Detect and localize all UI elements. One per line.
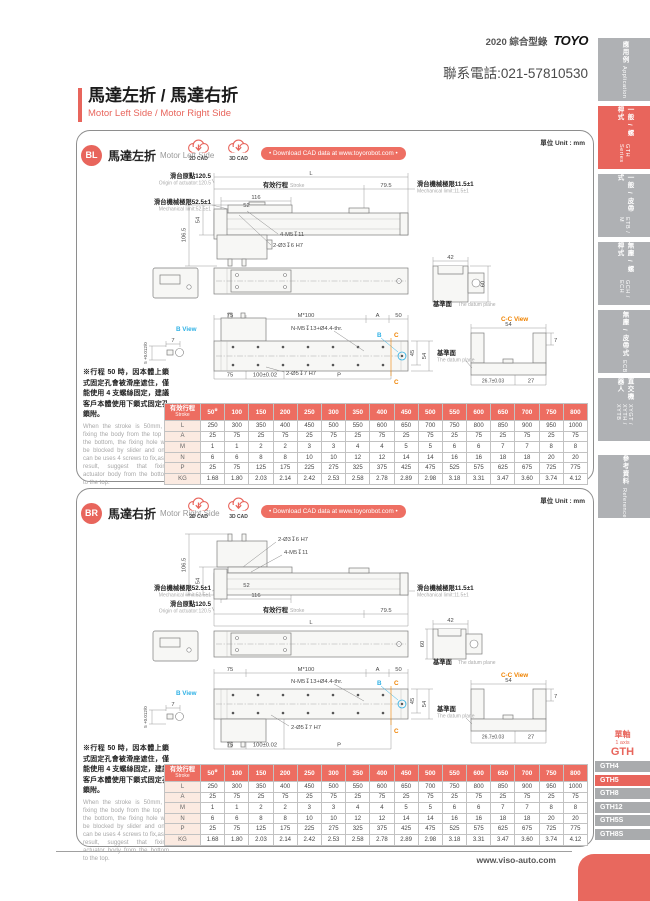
br-side-view-drawing: 2-Ø3↧6 H7 4-M5↧11 106.5 54 52 滑台機械極限52.5… [81, 527, 591, 665]
b-marker: B [377, 332, 382, 339]
panel-motor-right: BR 馬達右折 Motor Right Side 2D CAD [76, 488, 594, 847]
dim-7b: 7 [554, 694, 557, 700]
tab-label-zh: 無塵 / 螺桿式 [614, 242, 634, 277]
stroke-col-header: 150 [249, 765, 273, 782]
cad-links: 2D CAD 3D CAD [185, 497, 252, 520]
cloud-download-icon [225, 497, 252, 513]
panel-motor-left: BL 馬達左折 Motor Left Side 2D CAD [76, 130, 594, 482]
spec-cell: 3.60 [515, 834, 539, 845]
stroke-col-header: 400 [370, 765, 394, 782]
dim-A: A [376, 313, 380, 319]
spec-cell: 18 [515, 813, 539, 824]
spec-cell: 3.47 [491, 834, 515, 845]
spec-cell: 4 [370, 803, 394, 814]
tab-reference[interactable]: 參考資料 Reference [598, 455, 650, 518]
spec-cell: 600 [370, 782, 394, 793]
bl-side-view-drawing: 滑台原點120.5 Origin of actuator:120.5 L 有效行… [81, 169, 591, 311]
stroke-col-header: 700 [515, 765, 539, 782]
dim-116: 116 [251, 195, 260, 201]
tab-label-en: ECB [621, 360, 627, 373]
spec-row-P: P257512517522527532537542547552557562567… [165, 824, 588, 835]
bolt-note: 2-Ø5↧7 H7 [291, 724, 321, 731]
bl-badge: BL [81, 145, 102, 166]
spec-cell: 250 [201, 421, 225, 432]
spec-cell: 75 [467, 792, 491, 803]
spec-cell: 20 [539, 813, 563, 824]
spec-cell: 8 [273, 452, 297, 463]
cad-2d-link[interactable]: 2D CAD [185, 139, 212, 162]
mech-limit-left-en: Mechanical limit:52.5±1 [159, 593, 211, 599]
series-item-gth8[interactable]: GTH8 [595, 788, 650, 799]
datum-end-view [433, 629, 482, 659]
spec-cell: 1 [225, 803, 249, 814]
spec-cell: 16 [467, 813, 491, 824]
rail-body [214, 213, 408, 235]
dim-L: L [309, 171, 313, 177]
spec-cell: 20 [563, 452, 587, 463]
dim-45: 45 [410, 350, 416, 356]
row-label: A [165, 792, 201, 803]
row-label: P [165, 463, 201, 474]
spec-cell: 10 [321, 452, 345, 463]
download-cad-button[interactable]: • Download CAD data at www.toyorobot.com… [261, 147, 406, 160]
tab-label-zh: 一般 / 螺桿式 [614, 106, 634, 141]
dim-116: 116 [251, 593, 260, 599]
bolt-note: 2-Ø5↧7 H7 [286, 370, 316, 377]
stroke-col-header: 550 [442, 765, 466, 782]
spec-cell: 625 [491, 463, 515, 474]
cad-3d-link[interactable]: 3D CAD [225, 497, 252, 520]
dim-27: 27 [528, 379, 534, 385]
series-item-gth5s[interactable]: GTH5S [595, 815, 650, 826]
stroke-col-header: 150 [249, 404, 273, 421]
spec-cell: 75 [273, 792, 297, 803]
datum-label-zh: 基準面 [432, 299, 453, 308]
spec-cell: 75 [515, 431, 539, 442]
series-item-gth4[interactable]: GTH4 [595, 761, 650, 772]
tab-label-en: GCH / ECH [618, 280, 630, 305]
spec-cell: 12 [370, 813, 394, 824]
c-marker-top: C [394, 680, 399, 687]
stroke-header-cell: 有效行程Stroke [165, 404, 201, 421]
spec-cell: 500 [321, 782, 345, 793]
spec-cell: 12 [370, 452, 394, 463]
spec-cell: 475 [418, 463, 442, 474]
spec-cell: 525 [442, 824, 466, 835]
dim-79-5: 79.5 [380, 608, 391, 614]
cad-3d-link[interactable]: 3D CAD [225, 139, 252, 162]
tab-application[interactable]: 應用例 Application [598, 38, 650, 101]
datum-label-en: The datum plane [437, 358, 475, 364]
spec-cell: 5 [418, 442, 442, 453]
spec-cell: 5 [394, 803, 418, 814]
stroke-note: ※行程 50 時，因本體上鎖式固定孔會被滑座遮住，僅能使用 4 支螺絲固定，建議… [83, 368, 169, 487]
spec-cell: 650 [394, 782, 418, 793]
spec-cell: 14 [418, 813, 442, 824]
row-label: N [165, 452, 201, 463]
tab-label-zh: 參考資料 [619, 455, 629, 485]
tab-gth-series[interactable]: 一般 / 螺桿式 GTH Series [598, 106, 650, 169]
spec-cell: 3 [297, 803, 321, 814]
spec-cell: 2.78 [370, 834, 394, 845]
spec-cell: 6 [467, 442, 491, 453]
spec-cell: 16 [442, 452, 466, 463]
spec-cell: 2 [273, 442, 297, 453]
stroke-col-header: 200 [273, 765, 297, 782]
b-view-label: B View [176, 690, 197, 697]
spec-cell: 18 [491, 813, 515, 824]
b-marker: B [377, 680, 382, 687]
spec-cell: 675 [515, 463, 539, 474]
spec-cell: 750 [442, 421, 466, 432]
spec-cell: 350 [249, 421, 273, 432]
stroke-label-zh: 有效行程 [263, 605, 289, 614]
spec-cell: 4 [346, 442, 370, 453]
slider-block [228, 205, 292, 213]
origin-label-zh: 滑台原點120.5 [170, 599, 211, 608]
page-title: 馬達左折 / 馬達右折 [88, 86, 238, 106]
spec-cell: 3 [297, 442, 321, 453]
footer-divider [56, 851, 572, 852]
series-group-code: GTH [595, 746, 650, 758]
spec-cell: 125 [249, 824, 273, 835]
spec-cell: 10 [321, 813, 345, 824]
dim-106-5: 106.5 [182, 558, 188, 573]
cad-2d-link[interactable]: 2D CAD [185, 497, 212, 520]
download-cad-button[interactable]: • Download CAD data at www.toyorobot.com… [261, 505, 406, 518]
series-item-gth8s[interactable]: GTH8S [595, 829, 650, 840]
mech-limit-left-en: Mechanical limit:52.5±1 [159, 207, 211, 213]
spec-cell: 3 [321, 803, 345, 814]
category-sidebar: 應用例 Application 一般 / 螺桿式 GTH Series 一般 /… [598, 38, 650, 518]
spec-cell: 6 [225, 813, 249, 824]
spec-cell: 3 [321, 442, 345, 453]
spec-row-L: L250300350400450500550600650700750800850… [165, 421, 588, 432]
tab-label-zh: 應用例 [619, 41, 629, 64]
spec-cell: 2.53 [321, 834, 345, 845]
stroke-col-header: 350 [346, 404, 370, 421]
motor-end-view [153, 268, 198, 298]
spec-cell: 275 [321, 824, 345, 835]
tab-xy-robots[interactable]: 直交機器人 XYGT / XYTH / XYTB [598, 378, 650, 441]
datum-label-en: The datum plane [458, 302, 496, 308]
spec-cell: 2.14 [273, 473, 297, 484]
spec-cell: 2.14 [273, 834, 297, 845]
spec-cell: 7 [515, 442, 539, 453]
spec-cell: 8 [539, 442, 563, 453]
spec-cell: 25 [491, 431, 515, 442]
dim-60: 60 [481, 281, 487, 287]
series-item-gth5[interactable]: GTH5 [595, 775, 650, 786]
spec-row-KG: KG1.681.802.032.142.422.532.582.782.892.… [165, 834, 588, 845]
spec-cell: 25 [491, 792, 515, 803]
spec-cell: 7 [491, 442, 515, 453]
dim-54b: 54 [422, 352, 428, 359]
spec-cell: 12 [346, 452, 370, 463]
spec-cell: 900 [515, 782, 539, 793]
spec-row-M: M1122334455667788 [165, 803, 588, 814]
page-subtitle: Motor Left Side / Motor Right Side [88, 108, 238, 119]
spec-cell: 75 [370, 792, 394, 803]
spec-cell: 14 [394, 452, 418, 463]
dim-75: 75 [227, 667, 233, 673]
spec-cell: 425 [394, 463, 418, 474]
row-label: L [165, 421, 201, 432]
spec-cell: 2.78 [370, 473, 394, 484]
dim-L: L [309, 620, 313, 626]
dim-42: 42 [447, 255, 453, 261]
origin-label-en: Origin of actuator:120.5 [159, 181, 211, 187]
spec-cell: 12 [346, 813, 370, 824]
spec-cell: 16 [442, 813, 466, 824]
spec-cell: 25 [297, 431, 321, 442]
cad-links: 2D CAD 3D CAD [185, 139, 252, 162]
spec-cell: 25 [297, 792, 321, 803]
spec-cell: 1.80 [225, 473, 249, 484]
stroke-note: ※行程 50 時，因本體上鎖式固定孔會被滑座遮住，僅能使用 4 支螺絲固定，建議… [83, 744, 169, 863]
spec-cell: 350 [249, 782, 273, 793]
dim-100tol: 100±0.02 [253, 743, 277, 749]
spec-cell: 25 [201, 792, 225, 803]
dim-75: 75 [227, 313, 233, 319]
dim-M100: M*100 [298, 313, 315, 319]
spec-cell: 3.74 [539, 473, 563, 484]
spec-cell: 800 [467, 421, 491, 432]
spec-cell: 75 [225, 824, 249, 835]
spec-cell: 225 [297, 824, 321, 835]
spec-cell: 14 [394, 813, 418, 824]
stroke-label-zh: 有效行程 [263, 180, 289, 189]
stroke-header-cell: 有效行程Stroke [165, 765, 201, 782]
spec-cell: 525 [442, 463, 466, 474]
spec-cell: 850 [491, 421, 515, 432]
dim-54b: 54 [422, 700, 428, 707]
dim-7: 7 [171, 702, 174, 708]
spec-cell: 25 [394, 792, 418, 803]
spec-cell: 375 [370, 463, 394, 474]
spec-cell: 75 [321, 431, 345, 442]
spec-cell: 4.12 [563, 473, 587, 484]
dim-7b: 7 [554, 338, 557, 344]
series-item-gth12[interactable]: GTH12 [595, 802, 650, 813]
cloud-download-icon [225, 139, 252, 155]
mech-limit-left-zh: 滑台機械極限52.5±1 [154, 583, 211, 592]
datum-end-view [433, 266, 484, 302]
spec-cell: 8 [539, 803, 563, 814]
spec-cell: 900 [515, 421, 539, 432]
spec-cell: 6 [442, 442, 466, 453]
spec-row-N: N6688101012121414161618182020 [165, 452, 588, 463]
spec-row-L: L250300350400450500550600650700750800850… [165, 782, 588, 793]
spec-row-P: P257512517522527532537542547552557562567… [165, 463, 588, 474]
spec-cell: 325 [346, 824, 370, 835]
motor-body [221, 318, 266, 341]
row-label: N [165, 813, 201, 824]
dim-75b: 75 [227, 373, 233, 379]
unit-label: 單位 Unit : mm [540, 137, 585, 147]
tab-label-zh: 一般 / 皮帶式 [614, 174, 634, 214]
spec-cell: 575 [467, 463, 491, 474]
spec-cell: 575 [467, 824, 491, 835]
stroke-col-header: 500 [418, 404, 442, 421]
spec-cell: 2.53 [321, 473, 345, 484]
stroke-col-header: 600 [467, 765, 491, 782]
stroke-col-header: 450 [394, 404, 418, 421]
spec-cell: 800 [467, 782, 491, 793]
stroke-col-header: 400 [370, 404, 394, 421]
tab-gch-ech[interactable]: 無塵 / 螺桿式 GCH / ECH [598, 242, 650, 305]
spec-cell: 20 [539, 452, 563, 463]
dim-100tol: 100±0.02 [253, 373, 277, 379]
spec-cell: 75 [225, 463, 249, 474]
mech-limit-right-en: Mechanical limit:11.5±1 [417, 593, 469, 599]
cc-section-view [471, 689, 546, 731]
spec-cell: 600 [370, 421, 394, 432]
spec-cell: 5 [418, 803, 442, 814]
spec-cell: 2.42 [297, 834, 321, 845]
pin-tolerance: 5 +0.012/0 [143, 706, 148, 728]
mech-limit-left-zh: 滑台機械極限52.5±1 [154, 197, 211, 206]
spec-row-M: M1122334455667788 [165, 442, 588, 453]
stroke-col-header: 800 [563, 765, 587, 782]
stroke-col-header: 200 [273, 404, 297, 421]
spec-cell: 3.31 [467, 834, 491, 845]
stroke-col-header: 750 [539, 404, 563, 421]
c-marker-bottom: C [394, 728, 399, 735]
spec-cell: 75 [418, 792, 442, 803]
slider-block [228, 567, 292, 573]
stroke-col-header: 300 [321, 765, 345, 782]
row-label: KG [165, 473, 201, 484]
spec-cell: 400 [273, 782, 297, 793]
spec-cell: 25 [201, 463, 225, 474]
spec-cell: 7 [515, 803, 539, 814]
screw-note-2: 2-Ø3↧6 H7 [278, 536, 308, 543]
dim-26-7: 26.7±0.03 [482, 735, 504, 741]
spec-cell: 4.12 [563, 834, 587, 845]
tab-label-en: Application [621, 66, 627, 98]
spec-cell: 550 [346, 421, 370, 432]
bl-spec-table: 有效行程Stroke50※100150200250300350400450500… [164, 403, 588, 485]
spec-cell: 1000 [563, 782, 587, 793]
spec-cell: 10 [297, 813, 321, 824]
stroke-col-header: 250 [297, 765, 321, 782]
cloud-download-icon [185, 497, 212, 513]
br-spec-table: 有效行程Stroke50※100150200250300350400450500… [164, 764, 588, 846]
page-title-block: 馬達左折 / 馬達右折 Motor Left Side / Motor Righ… [78, 86, 238, 119]
spec-cell: 1 [225, 442, 249, 453]
spec-cell: 675 [515, 824, 539, 835]
stroke-label-en: Stroke [290, 608, 305, 614]
spec-cell: 1.80 [225, 834, 249, 845]
dim-79-5: 79.5 [380, 183, 391, 189]
cad-2d-label: 2D CAD [185, 514, 212, 520]
series-group-zh: 單軸 [595, 729, 650, 740]
series-nav: 單軸 1 axis GTH GTH4 GTH5 GTH8 GTH12 GTH5S… [595, 729, 650, 842]
spec-cell: 4 [346, 803, 370, 814]
spec-cell: 500 [321, 421, 345, 432]
dim-7: 7 [171, 338, 174, 344]
hole-note: N-M5↧13+Ø4.4-thr. [291, 678, 343, 685]
pin-detail [167, 349, 184, 357]
cad-2d-label: 2D CAD [185, 156, 212, 162]
actuator-side-view [214, 202, 408, 266]
spec-cell: 2.98 [418, 473, 442, 484]
spec-cell: 25 [539, 431, 563, 442]
spec-cell: 10 [297, 452, 321, 463]
row-label: P [165, 824, 201, 835]
spec-cell: 300 [225, 782, 249, 793]
spec-cell: 300 [225, 421, 249, 432]
contact-phone: 聯系電話:021-57810530 [443, 62, 588, 82]
spec-cell: 400 [273, 421, 297, 432]
stroke-col-header: 300 [321, 404, 345, 421]
spec-cell: 2 [249, 803, 273, 814]
motor-end-view [153, 631, 198, 661]
dim-P: P [337, 373, 341, 379]
spec-cell: 950 [539, 421, 563, 432]
dim-54: 54 [196, 216, 202, 223]
tab-label-en: ETB / M [618, 217, 630, 237]
spec-cell: 18 [515, 452, 539, 463]
spec-cell: 3.31 [467, 473, 491, 484]
title-accent-bar [78, 88, 82, 122]
stroke-col-header: 650 [491, 404, 515, 421]
stroke-col-header: 650 [491, 765, 515, 782]
edition-text: 2020 綜合型錄 [486, 37, 548, 48]
spec-cell: 25 [442, 792, 466, 803]
stroke-col-header: 800 [563, 404, 587, 421]
spec-cell: 2.58 [346, 834, 370, 845]
spec-cell: 75 [467, 431, 491, 442]
spec-cell: 25 [442, 431, 466, 442]
spec-cell: 3.18 [442, 834, 466, 845]
dim-27: 27 [528, 735, 534, 741]
spec-cell: 8 [563, 803, 587, 814]
spec-cell: 18 [491, 452, 515, 463]
tab-etb-m[interactable]: 一般 / 皮帶式 ETB / M [598, 174, 650, 237]
tab-label-zh: 直交機器人 [614, 378, 634, 401]
spec-cell: 3.18 [442, 473, 466, 484]
origin-label-en: Origin of actuator:120.5 [159, 609, 211, 615]
tab-label-en: Reference [621, 488, 627, 518]
spec-cell: 175 [273, 463, 297, 474]
spec-cell: 625 [491, 824, 515, 835]
cad-3d-label: 3D CAD [225, 156, 252, 162]
note-zh: ※行程 50 時，因本體上鎖式固定孔會被滑座遮住，僅能使用 4 支螺絲固定，建議… [83, 744, 169, 797]
datum-label-en: The datum plane [437, 714, 475, 720]
spec-cell: 1 [201, 803, 225, 814]
tab-label-en: GTH Series [618, 144, 630, 169]
stroke-col-header: 450 [394, 765, 418, 782]
spec-row-KG: KG1.681.802.032.142.422.532.582.782.892.… [165, 473, 588, 484]
spec-cell: 6 [467, 803, 491, 814]
dim-52: 52 [243, 583, 249, 589]
origin-label-zh: 滑台原點120.5 [170, 171, 211, 180]
spec-cell: 2.03 [249, 834, 273, 845]
spec-cell: 1 [201, 442, 225, 453]
catalog-edition: 2020 綜合型錄TOYO [486, 33, 588, 48]
stroke-col-header: 500 [418, 765, 442, 782]
spec-cell: 850 [491, 782, 515, 793]
spec-cell: 2 [249, 442, 273, 453]
stroke-col-header: 600 [467, 404, 491, 421]
row-label: M [165, 442, 201, 453]
stroke-col-header: 100 [225, 765, 249, 782]
spec-cell: 75 [225, 431, 249, 442]
tab-ecb[interactable]: 無塵 / 皮帶式 ECB [598, 310, 650, 373]
pin-tolerance: 5 +0.012/0 [143, 342, 148, 364]
